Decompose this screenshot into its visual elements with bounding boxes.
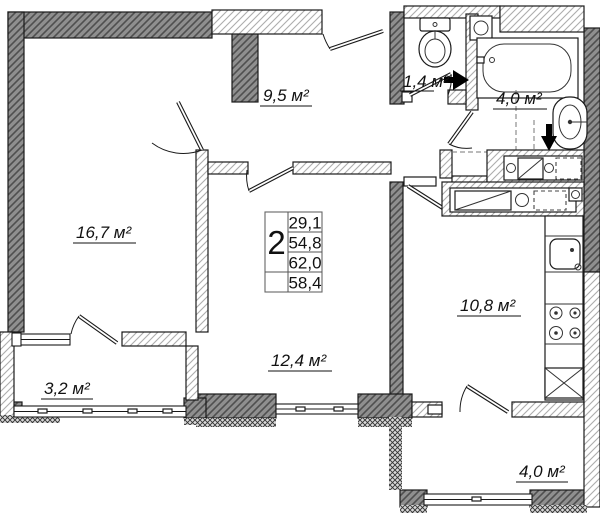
wash-basin-icon [470,16,492,40]
wall-segment [440,150,452,178]
window-bedroom [276,404,358,414]
wall-segment [122,332,186,346]
kitchen-counter-top [442,182,584,216]
door-arc [449,144,472,148]
wall-segment [293,162,391,174]
wall-segment [196,150,208,332]
wall-segment [530,490,586,507]
insulation-strip [530,505,587,513]
insulation-strip [184,418,206,425]
insulation-strip [196,418,276,427]
door-arc [460,386,467,412]
wall-segment [8,12,24,332]
toilet-icon [419,18,451,67]
room-area-label: 9,5 м² [263,86,310,105]
wall-segment [358,394,412,418]
area-value-3: 62,0 [288,254,321,273]
glazing-tick [163,409,172,413]
kitchen-counter-right [545,216,583,400]
glazing-tick [38,409,47,413]
door-arc [71,316,79,334]
door-jamb [404,177,436,186]
wall-segment [184,398,206,418]
glazing-tick [334,407,343,411]
label-bathroom: 4,0 м² [493,89,547,109]
wall-segment [584,28,600,272]
door-balcony-left [71,316,117,343]
label-bedroom: 12,4 м² [268,351,332,371]
label-balcony-left: 3,2 м² [41,379,93,399]
glazing-tick [128,409,137,413]
label-balcony-right: 4,0 м² [516,462,568,482]
label-kitchen: 10,8 м² [457,296,521,316]
bathroom-lower-unit [487,150,584,184]
door-arc [152,143,202,153]
door-bathroom [449,112,472,148]
wall-segment [584,272,600,507]
floor-plan: 2 29,1 54,8 62,0 58,4 16,7 м² 9,5 м² 1,4… [0,0,600,514]
label-living: 16,7 м² [73,223,136,243]
kitchen-sink-icon [550,239,581,270]
window-living-balcony [12,333,70,346]
boiler-icon [569,188,582,201]
area-value-2: 54,8 [288,234,321,253]
room-area-label: 3,2 м² [44,379,91,398]
appliance-dashed-icon [534,191,566,210]
wall-segment [400,490,427,507]
room-area-label: 16,7 м² [76,223,132,242]
wall-segment [512,402,584,417]
door-arc [323,34,330,49]
fridge-icon [545,368,583,398]
balcony-left-glazing [14,406,186,417]
glazing-tick [296,407,305,411]
window-post [12,333,21,346]
door-balcony-right [428,386,508,414]
area-value-1: 29,1 [288,214,321,233]
area-value-4: 58,4 [288,274,321,293]
wall-segment [196,394,276,418]
door-bedroom [247,168,293,191]
label-hall: 9,5 м² [260,86,312,106]
insulation-strip [358,418,412,427]
door-jamb [428,405,442,414]
wall-segment [8,12,212,38]
wall-segment [390,12,404,104]
rooms-count: 2 [267,224,285,261]
room-area-label: 10,8 м² [460,296,516,315]
pedestal-sink-icon [553,97,587,149]
insulation-strip [389,417,402,490]
summary-table: 2 29,1 54,8 62,0 58,4 [265,212,322,293]
floor-plan-drawing: 2 29,1 54,8 62,0 58,4 16,7 м² 9,5 м² 1,4… [0,0,600,514]
room-area-label: 12,4 м² [271,351,327,370]
wall-segment [186,346,198,400]
room-area-label: 4,0 м² [496,89,543,108]
wall-segment [390,182,403,396]
balcony-right-glazing [424,494,532,505]
door-entrance [323,31,383,49]
glazing-tick [83,409,92,413]
insulation-strip [400,505,427,513]
wall-segment [500,6,584,32]
label-wc: 1,4 м² [400,72,450,91]
glazing-tick [472,497,481,501]
room-area-label: 1,4 м² [403,72,450,91]
wall-segment [212,10,322,34]
room-area-label: 4,0 м² [519,462,566,481]
wall-segment [208,162,248,174]
door-living [152,102,202,153]
wall-segment [448,90,466,104]
appliance-dashed-icon [556,158,581,179]
